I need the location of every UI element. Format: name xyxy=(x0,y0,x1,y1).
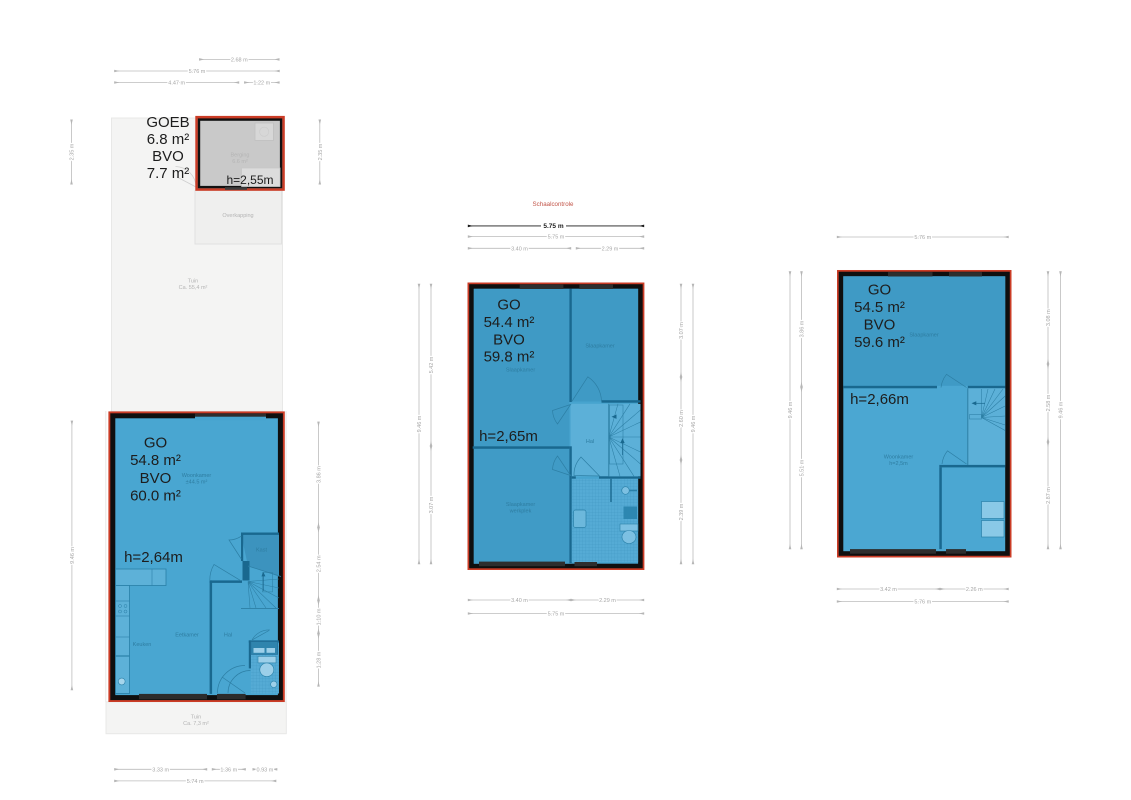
svg-text:3.07 m: 3.07 m xyxy=(429,496,435,513)
svg-text:54.8 m²: 54.8 m² xyxy=(130,452,181,469)
svg-text:BVO: BVO xyxy=(864,317,896,334)
svg-text:2.35 m: 2.35 m xyxy=(318,143,324,160)
svg-text:Woonkamer: Woonkamer xyxy=(182,473,212,479)
svg-text:5.74 m: 5.74 m xyxy=(187,779,204,785)
svg-text:Slaapkamer: Slaapkamer xyxy=(506,502,536,508)
svg-text:Slaapkamer: Slaapkamer xyxy=(909,333,939,339)
svg-text:Hal: Hal xyxy=(586,439,594,445)
svg-text:h=2,5m: h=2,5m xyxy=(889,461,908,467)
svg-text:werkplek: werkplek xyxy=(509,509,532,515)
svg-text:2.60 m: 2.60 m xyxy=(679,410,685,427)
svg-text:BVO: BVO xyxy=(140,470,172,487)
svg-text:Hal: Hal xyxy=(224,633,232,639)
svg-text:3.33 m: 3.33 m xyxy=(152,767,169,773)
svg-text:59.8 m²: 59.8 m² xyxy=(484,349,535,366)
svg-text:1.10 m: 1.10 m xyxy=(317,608,323,625)
svg-text:3.07 m: 3.07 m xyxy=(679,322,685,339)
svg-text:5.76 m: 5.76 m xyxy=(914,235,931,241)
svg-text:Tuin: Tuin xyxy=(188,279,199,285)
svg-text:h=2,66m: h=2,66m xyxy=(850,391,909,408)
svg-text:7.7 m²: 7.7 m² xyxy=(147,165,190,182)
svg-text:1.28 m: 1.28 m xyxy=(317,651,323,668)
svg-text:5.76 m: 5.76 m xyxy=(189,69,206,75)
svg-text:Overkapping: Overkapping xyxy=(222,213,253,219)
svg-text:GO: GO xyxy=(868,282,891,299)
svg-text:3.40 m: 3.40 m xyxy=(511,246,528,252)
svg-text:2.35 m: 2.35 m xyxy=(70,143,76,160)
svg-text:4.47 m: 4.47 m xyxy=(168,81,185,87)
svg-text:Berging: Berging xyxy=(231,153,250,159)
svg-text:54.4 m²: 54.4 m² xyxy=(484,314,535,331)
svg-text:2.87 m: 2.87 m xyxy=(1046,487,1052,504)
svg-text:5.76 m: 5.76 m xyxy=(914,600,931,606)
svg-text:2.39 m: 2.39 m xyxy=(679,503,685,520)
svg-text:Tuin: Tuin xyxy=(191,715,202,721)
svg-text:5.75 m: 5.75 m xyxy=(548,612,565,618)
svg-text:60.0 m²: 60.0 m² xyxy=(130,488,181,505)
svg-text:2.68 m: 2.68 m xyxy=(231,57,248,63)
svg-text:3.40 m: 3.40 m xyxy=(511,598,528,604)
svg-text:9.46 m: 9.46 m xyxy=(70,547,76,564)
svg-text:1.36 m: 1.36 m xyxy=(220,767,237,773)
svg-text:Woonkamer: Woonkamer xyxy=(884,455,914,461)
svg-text:2.29 m: 2.29 m xyxy=(599,598,616,604)
svg-text:5.75 m: 5.75 m xyxy=(543,223,563,230)
svg-text:54.5 m²: 54.5 m² xyxy=(854,299,905,316)
svg-text:5.42 m: 5.42 m xyxy=(429,356,435,373)
svg-text:h=2,65m: h=2,65m xyxy=(479,428,538,445)
svg-text:3.86 m: 3.86 m xyxy=(317,466,323,483)
svg-text:9.46 m: 9.46 m xyxy=(691,415,697,432)
svg-text:5.51 m: 5.51 m xyxy=(800,459,806,476)
svg-text:Eetkamer: Eetkamer xyxy=(175,633,199,639)
svg-text:9.46 m: 9.46 m xyxy=(1059,401,1065,418)
svg-text:9.46 m: 9.46 m xyxy=(788,401,794,418)
svg-text:2.54 m: 2.54 m xyxy=(317,555,323,572)
svg-text:9.46 m: 9.46 m xyxy=(417,415,423,432)
svg-text:6.6 m²: 6.6 m² xyxy=(232,159,248,165)
svg-text:5.75 m: 5.75 m xyxy=(548,235,565,241)
svg-text:Kast: Kast xyxy=(256,548,267,554)
svg-text:BVO: BVO xyxy=(152,148,184,165)
svg-text:59.6 m²: 59.6 m² xyxy=(854,334,905,351)
svg-text:3.86 m: 3.86 m xyxy=(800,320,806,337)
svg-text:2.58 m: 2.58 m xyxy=(1046,394,1052,411)
svg-text:GO: GO xyxy=(144,435,167,452)
svg-text:BVO: BVO xyxy=(493,332,525,349)
svg-text:3.08 m: 3.08 m xyxy=(1046,309,1052,326)
svg-text:h=2,64m: h=2,64m xyxy=(124,549,183,566)
svg-text:2.29 m: 2.29 m xyxy=(602,246,619,252)
svg-text:1.22 m: 1.22 m xyxy=(253,81,270,87)
svg-text:Slaapkamer: Slaapkamer xyxy=(585,344,615,350)
svg-text:0.93 m: 0.93 m xyxy=(256,767,273,773)
svg-text:Slaapkamer: Slaapkamer xyxy=(506,368,536,374)
svg-text:Ca. 55,4 m²: Ca. 55,4 m² xyxy=(179,285,208,291)
svg-text:±44.5 m²: ±44.5 m² xyxy=(186,480,208,486)
svg-text:Ca. 7,3 m²: Ca. 7,3 m² xyxy=(183,721,209,727)
svg-text:3.42 m: 3.42 m xyxy=(880,587,897,593)
svg-text:Keuken: Keuken xyxy=(133,642,152,648)
svg-text:6.8 m²: 6.8 m² xyxy=(147,131,190,148)
svg-text:h=2,55m: h=2,55m xyxy=(226,173,273,187)
svg-text:Schaalcontrole: Schaalcontrole xyxy=(533,201,574,208)
svg-text:2.26 m: 2.26 m xyxy=(966,587,983,593)
svg-text:GOEB: GOEB xyxy=(146,114,189,131)
svg-text:GO: GO xyxy=(497,297,520,314)
